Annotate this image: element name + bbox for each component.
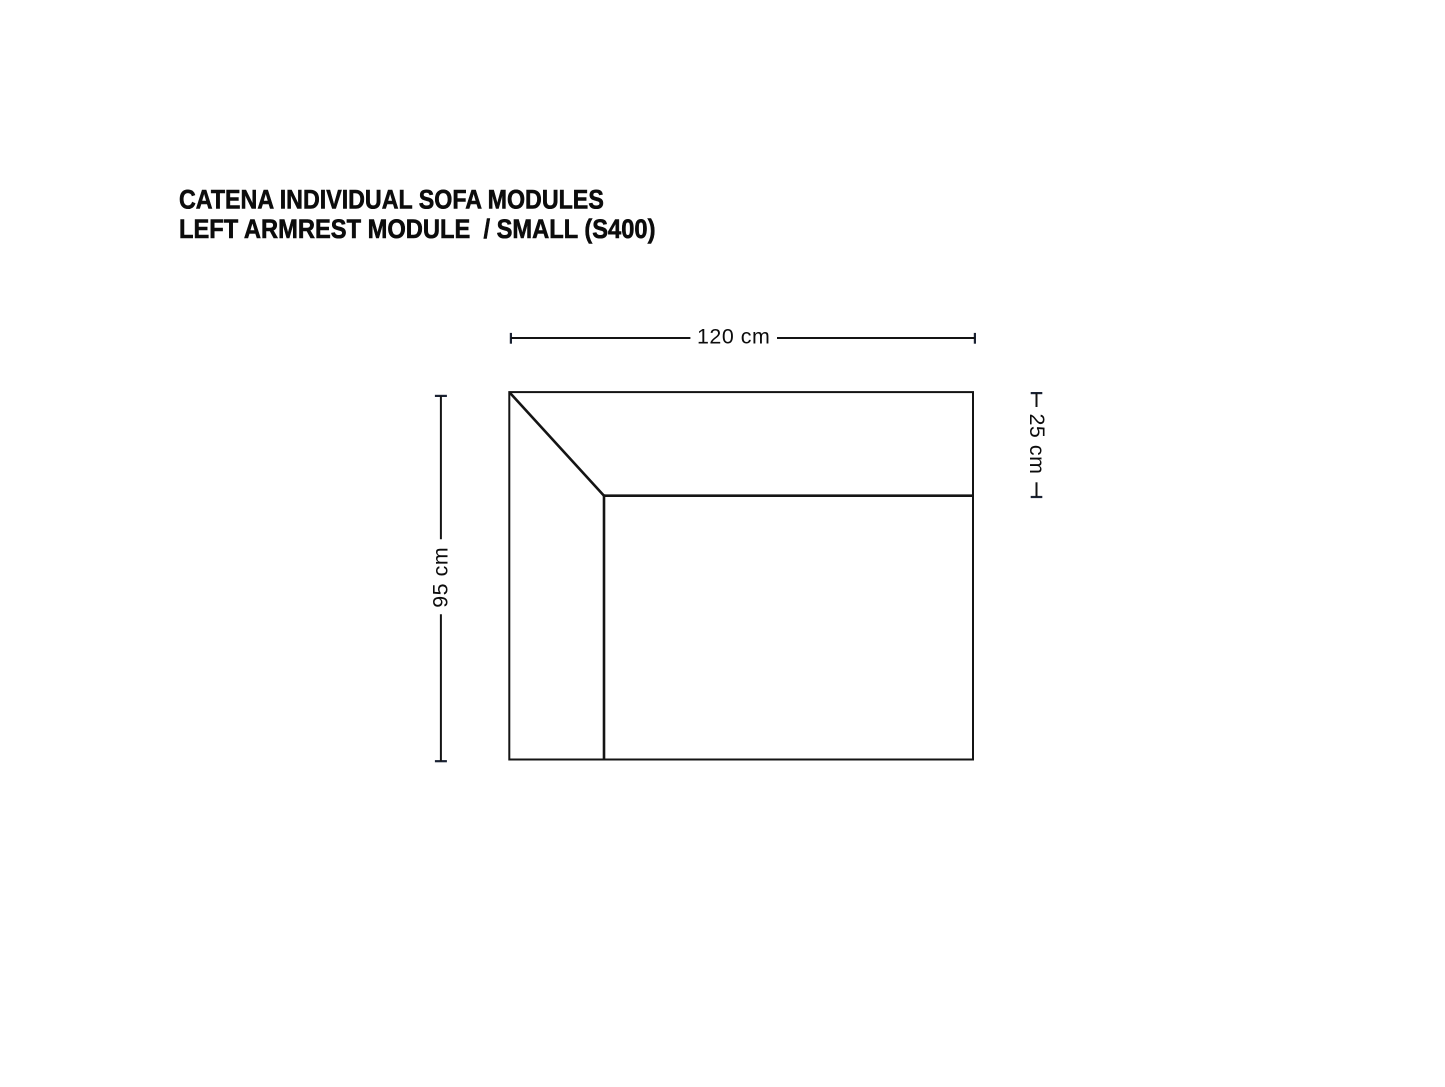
svg-text:120 cm: 120 cm — [697, 324, 770, 348]
svg-text:CATENA INDIVIDUAL SOFA MODULES: CATENA INDIVIDUAL SOFA MODULES — [179, 185, 604, 215]
svg-text:25 cm: 25 cm — [1025, 414, 1049, 475]
svg-text:LEFT ARMREST MODULE / SMALL (: LEFT ARMREST MODULE / SMALL (S400) — [179, 215, 655, 245]
svg-text:95 cm: 95 cm — [428, 547, 452, 608]
